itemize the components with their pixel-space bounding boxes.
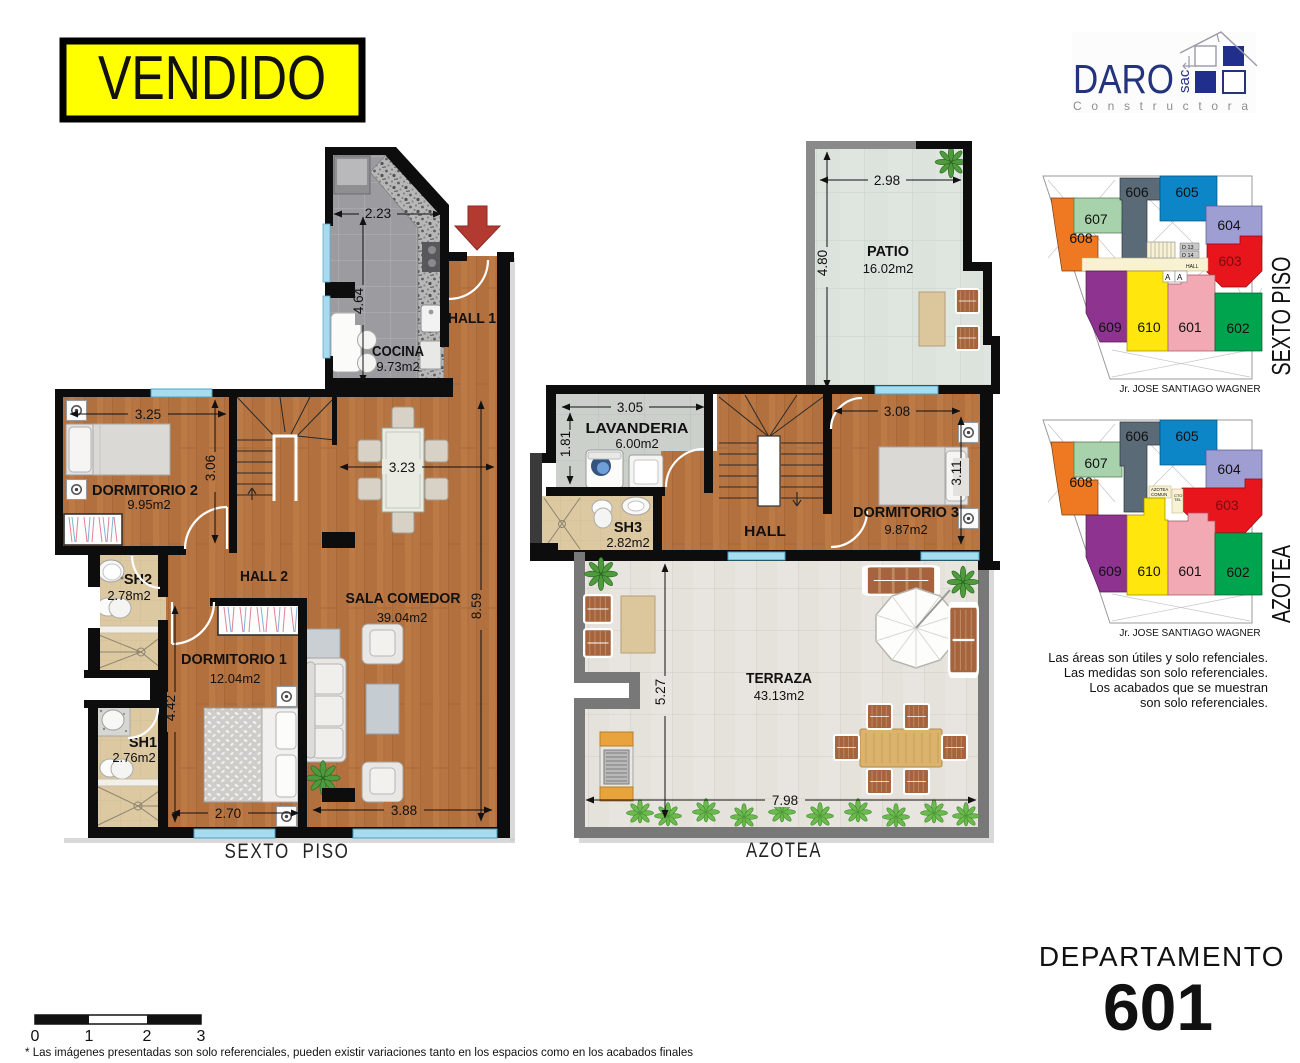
svg-text:SALA COMEDOR: SALA COMEDOR	[346, 591, 462, 607]
svg-text:9.95m2: 9.95m2	[127, 497, 170, 512]
svg-text:A: A	[1165, 273, 1171, 282]
svg-text:Jr. JOSE SANTIAGO WAGNER: Jr. JOSE SANTIAGO WAGNER	[1119, 384, 1260, 395]
svg-text:SH3: SH3	[614, 520, 642, 536]
svg-text:TERRAZA: TERRAZA	[746, 671, 812, 687]
svg-text:601: 601	[1103, 970, 1213, 1044]
svg-text:6.00m2: 6.00m2	[615, 436, 658, 451]
svg-text:SEXTO PISO: SEXTO PISO	[225, 840, 350, 863]
svg-text:COMUN: COMUN	[1151, 492, 1167, 497]
svg-text:3.25: 3.25	[135, 407, 161, 422]
svg-text:TEL: TEL	[1174, 497, 1182, 502]
svg-text:607: 607	[1084, 211, 1108, 227]
svg-text:16.02m2: 16.02m2	[863, 261, 914, 276]
svg-text:AZOTEA: AZOTEA	[1266, 545, 1296, 623]
svg-text:610: 610	[1137, 563, 1161, 579]
svg-text:3.08: 3.08	[884, 404, 910, 419]
svg-text:Las medidas son solo referenci: Las medidas son solo referenciales.	[1064, 665, 1268, 680]
svg-text:4.64: 4.64	[351, 287, 366, 314]
svg-text:43.13m2: 43.13m2	[754, 688, 805, 703]
svg-text:602: 602	[1226, 564, 1250, 580]
svg-text:2.78m2: 2.78m2	[107, 588, 150, 603]
svg-text:39.04m2: 39.04m2	[377, 610, 428, 625]
svg-text:* Las imágenes presentadas son: * Las imágenes presentadas son solo refe…	[25, 1045, 693, 1059]
svg-text:DEPARTAMENTO: DEPARTAMENTO	[1039, 941, 1285, 972]
svg-text:SEXTO PISO: SEXTO PISO	[1266, 257, 1296, 376]
svg-text:3.05: 3.05	[617, 400, 643, 415]
svg-text:1: 1	[85, 1028, 94, 1045]
svg-text:3.06: 3.06	[203, 455, 218, 481]
svg-text:sac: sac	[1176, 69, 1193, 93]
svg-text:D 13: D 13	[1182, 245, 1194, 251]
svg-text:D 14: D 14	[1182, 253, 1194, 259]
svg-text:A: A	[1177, 273, 1183, 282]
svg-text:606: 606	[1125, 184, 1149, 200]
svg-text:son solo referenciales.: son solo referenciales.	[1140, 695, 1268, 710]
svg-text:608: 608	[1069, 230, 1093, 246]
svg-text:2: 2	[143, 1028, 152, 1045]
svg-text:9.73m2: 9.73m2	[376, 359, 419, 374]
svg-text:604: 604	[1217, 461, 1241, 477]
svg-text:2.98: 2.98	[874, 173, 900, 188]
svg-text:LAVANDERIA: LAVANDERIA	[586, 421, 690, 437]
svg-text:9.87m2: 9.87m2	[884, 522, 927, 537]
svg-text:609: 609	[1098, 319, 1122, 335]
svg-text:HALL 1: HALL 1	[448, 311, 496, 327]
svg-text:605: 605	[1175, 184, 1199, 200]
svg-text:2.70: 2.70	[215, 806, 241, 821]
svg-text:COCINA: COCINA	[372, 344, 424, 360]
svg-text:Jr. JOSE SANTIAGO WAGNER: Jr. JOSE SANTIAGO WAGNER	[1119, 628, 1260, 639]
svg-text:610: 610	[1137, 319, 1161, 335]
svg-text:5.27: 5.27	[653, 679, 668, 705]
svg-text:605: 605	[1175, 428, 1199, 444]
svg-text:608: 608	[1069, 474, 1093, 490]
svg-text:AZOTEA: AZOTEA	[746, 839, 822, 862]
svg-text:601: 601	[1178, 319, 1202, 335]
svg-text:VENDIDO: VENDIDO	[98, 44, 326, 113]
svg-text:Las áreas son útiles y solo re: Las áreas son útiles y solo refenciales.	[1048, 650, 1268, 665]
svg-text:2.76m2: 2.76m2	[112, 750, 155, 765]
svg-text:Los acabados que se muestran: Los acabados que se muestran	[1089, 680, 1268, 695]
svg-text:HALL: HALL	[1186, 264, 1199, 270]
svg-text:0: 0	[31, 1028, 40, 1045]
svg-text:HALL 2: HALL 2	[240, 569, 288, 585]
svg-text:1.81: 1.81	[558, 431, 573, 457]
svg-text:603: 603	[1215, 497, 1239, 513]
svg-text:604: 604	[1217, 217, 1241, 233]
svg-text:DORMITORIO 3: DORMITORIO 3	[853, 505, 959, 521]
svg-text:DORMITORIO 1: DORMITORIO 1	[181, 652, 287, 668]
svg-text:3.23: 3.23	[389, 460, 415, 475]
svg-text:8.59: 8.59	[469, 593, 484, 619]
svg-text:603: 603	[1218, 253, 1242, 269]
svg-text:DARO: DARO	[1073, 56, 1174, 102]
svg-text:12.04m2: 12.04m2	[210, 671, 261, 686]
svg-text:3.11: 3.11	[949, 460, 964, 485]
svg-text:HALL: HALL	[744, 524, 786, 540]
svg-text:3.88: 3.88	[391, 803, 417, 818]
svg-text:7.98: 7.98	[772, 793, 798, 808]
svg-text:606: 606	[1125, 428, 1149, 444]
svg-text:4.42: 4.42	[163, 695, 178, 721]
svg-text:601: 601	[1178, 563, 1202, 579]
svg-text:607: 607	[1084, 455, 1108, 471]
svg-text:2.82m2: 2.82m2	[606, 535, 649, 550]
svg-text:4.80: 4.80	[815, 250, 830, 276]
svg-text:3: 3	[197, 1028, 206, 1045]
svg-text:602: 602	[1226, 320, 1250, 336]
svg-text:2.23: 2.23	[365, 206, 391, 221]
svg-text:609: 609	[1098, 563, 1122, 579]
svg-text:PATIO: PATIO	[867, 244, 909, 260]
